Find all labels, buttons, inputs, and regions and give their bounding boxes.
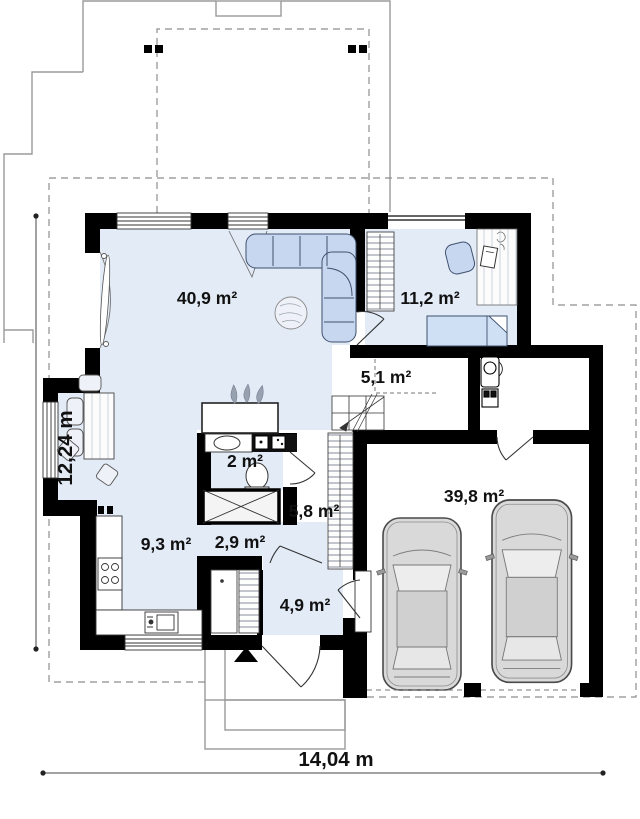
room-label-bedroom: 11,2 m²	[400, 288, 460, 308]
wall-segment	[589, 345, 603, 697]
floor-plan-page: 12,24 m 14,04 m 40,9 m² 11,2 m² 5,1 m² 2…	[0, 0, 640, 819]
chimney	[216, 1, 281, 16]
wall-segment	[464, 683, 481, 697]
room-label-entry: 4,9 m²	[280, 595, 331, 615]
room-label-wc: 2 m²	[227, 451, 263, 471]
garage	[367, 500, 580, 690]
wall-segment	[353, 430, 367, 580]
wall-segment	[60, 500, 97, 516]
porch-canopy-dashed	[157, 29, 369, 213]
entry-wardrobe	[239, 570, 259, 633]
boiler	[481, 357, 502, 407]
wall-segment	[468, 358, 480, 430]
wall-segment	[350, 345, 603, 358]
kitchen-sink	[145, 612, 178, 633]
hob	[98, 558, 122, 590]
entry-porch-steps	[205, 700, 345, 749]
car-right	[485, 500, 578, 682]
room-label-hall: 5,8 m²	[289, 501, 340, 521]
shaft-crossed-box	[203, 490, 279, 523]
room-label-living-room: 40,9 m²	[177, 288, 237, 308]
bed	[427, 316, 507, 346]
floor-plan-drawing: 12,24 m 14,04 m 40,9 m² 11,2 m² 5,1 m² 2…	[0, 0, 640, 819]
wall-segment	[98, 506, 104, 514]
wall-segment	[533, 430, 603, 444]
wc-sink	[214, 436, 240, 450]
desk	[477, 229, 517, 305]
room-label-stair-hall: 5,1 m²	[361, 367, 412, 387]
dimension-horizontal: 14,04 m	[40, 748, 605, 776]
wall-segment	[107, 506, 113, 514]
room-label-corridor: 2,9 m²	[215, 532, 266, 552]
wall-segment	[580, 683, 603, 697]
wall-segment	[85, 213, 100, 253]
room-label-garage: 39,8 m²	[444, 486, 504, 506]
wall-segment	[353, 430, 497, 444]
room-label-kitchen: 9,3 m²	[141, 534, 192, 554]
wall-segment	[43, 378, 58, 402]
dimension-height-label: 12,24 m	[54, 410, 77, 485]
dimension-width-label: 14,04 m	[298, 748, 373, 771]
window-bedroom	[388, 216, 465, 220]
bedroom-wardrobe	[367, 232, 394, 311]
wall-segment	[517, 213, 531, 358]
entry-closet	[211, 570, 259, 633]
stairs	[332, 394, 384, 432]
laptop	[480, 246, 497, 268]
porch-columns	[144, 45, 367, 53]
wall-segment	[80, 516, 96, 650]
door-wc	[290, 452, 315, 484]
wall-segment	[191, 213, 228, 229]
wall-segment	[268, 213, 388, 229]
window-living-1	[117, 213, 191, 229]
car-left	[377, 518, 468, 690]
wall-segment	[80, 635, 125, 650]
door-main-entrance	[262, 646, 320, 687]
dimension-vertical: 12,24 m	[33, 213, 77, 651]
door-boiler-garage	[497, 437, 533, 460]
window-living-2	[228, 213, 268, 229]
round-rug	[275, 297, 307, 329]
window-kitchen	[125, 635, 202, 650]
